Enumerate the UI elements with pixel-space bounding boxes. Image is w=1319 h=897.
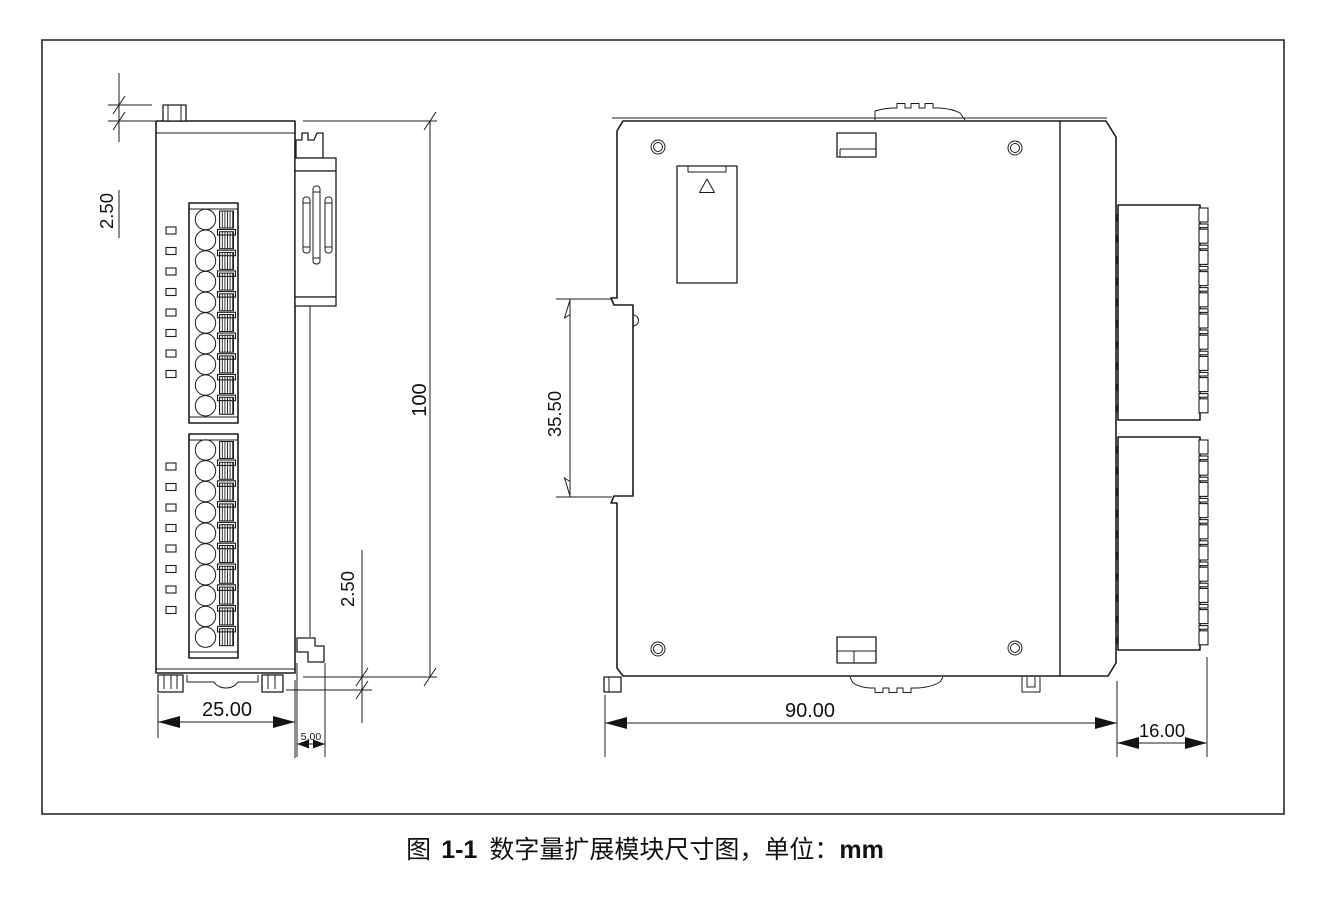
wire-clamp-hatch [220,462,234,479]
terminal-segment-bump [1199,399,1208,413]
dimension-value: 25.00 [202,699,252,721]
extension-lines [108,105,155,121]
led-indicator [166,227,176,234]
bottom-right-hook [1022,677,1040,692]
terminal-segment-bump [1199,482,1208,496]
terminal-segment-gap [1199,372,1208,376]
terminal-segment-bump [1199,440,1208,454]
led-indicator [166,289,176,296]
terminal-block-profile [1118,205,1200,420]
terminal-segment-gap [1199,245,1208,249]
terminal-segment-gap [1199,541,1208,545]
figure-caption: 图1-1数字量扩展模块尺寸图，单位：mm [406,836,884,864]
terminal-segment-bump [1199,293,1208,307]
wire-clamp-hatch [220,294,234,311]
dimension-value: 90.00 [785,700,835,722]
label-recess-frame [677,166,737,283]
terminal-segment-gap [1199,224,1208,228]
terminal-block-top [189,203,238,423]
dimension-din-rail-recess: 35.50 [544,299,612,497]
terminal-segment-gap [1199,330,1208,334]
terminal-segment-gap [1199,520,1208,524]
wire-clamp-hatch [220,252,234,269]
bottom-slot [837,637,876,663]
led-indicator [166,248,176,255]
led-indicator [166,268,176,275]
terminal-segment-bump [1199,504,1208,518]
wire-clamp-hatch [220,397,234,414]
terminal-segment-bump [1199,567,1208,581]
din-foot-tray [187,675,258,688]
connector-hook [296,133,323,158]
terminal-segment-gap [1199,456,1208,460]
terminal-segment-gap [1199,351,1208,355]
caption-figure-number: 1-1 [441,836,477,864]
wire-clamp-hatch [220,566,234,583]
terminal-segment-bump [1199,378,1208,392]
terminal-segment-bump [1199,208,1208,222]
wire-clamp-hatch [220,335,234,352]
terminal-segment-bump [1199,610,1208,624]
dimension-value: 35.50 [544,391,565,437]
dimension-bottom-clip-protrusion: 2.50 [286,550,372,723]
terminal-block-side-bottom [1117,437,1209,650]
slot-frame [837,133,876,157]
dimension-value: 100 [409,383,431,416]
connector-top-band [295,158,336,171]
terminal-segment-gap [1199,477,1208,481]
led-indicator [166,309,176,316]
top-slot [837,133,876,157]
terminal-segment-gap [1199,498,1208,502]
wire-clamp-hatch [220,315,234,332]
terminal-block-side-top [1117,205,1209,420]
terminal-segment-bump [1199,461,1208,475]
led-indicator [166,350,176,357]
terminal-segment-bump [1199,546,1208,560]
terminal-segment-gap [1199,562,1208,566]
terminal-segment-gap [1199,626,1208,630]
led-indicator [166,566,176,573]
terminal-segment-gap [1199,604,1208,608]
dimension-terminal-block-depth: 16.00 [1117,657,1207,757]
wire-clamp-hatch [220,525,234,542]
slot-frame [837,637,876,663]
wire-clamp-hatch [220,504,234,521]
din-clamp-tab [163,105,186,121]
bottom-hook [297,638,324,662]
terminal-segment-bump [1199,229,1208,243]
led-indicator [166,330,176,337]
wire-clamp-hatch [220,442,234,459]
terminal-segment-bump [1199,631,1208,645]
terminal-segment-gap [1199,266,1208,270]
dimension-value: 2.50 [96,193,117,229]
terminal-segment-bump [1199,314,1208,328]
wire-clamp-hatch [220,356,234,373]
wire-clamp-hatch [220,587,234,604]
dimension-value: 2.50 [337,571,358,607]
terminal-segment-bump [1199,525,1208,539]
din-foot-right [262,675,283,692]
dimension-value: 5.00 [301,731,322,743]
led-indicator [166,586,176,593]
wire-clamp-hatch [220,629,234,646]
wire-clamp-hatch [220,232,234,249]
expansion-bus-connector [295,133,336,662]
led-indicator [166,504,176,511]
arrowheads [565,300,571,496]
led-indicator [166,484,176,491]
wire-clamp-hatch [220,608,234,625]
din-foot-assembly [158,675,283,692]
caption-figure-label: 图 [406,836,431,864]
terminal-segment-bump [1199,588,1208,602]
caption-unit: mm [839,836,883,864]
wire-clamp-hatch [220,273,234,290]
led-indicator [166,371,176,378]
terminal-segment-bump [1199,356,1208,370]
bottom-left-foot [604,677,621,692]
terminal-segment-bump [1199,335,1208,349]
dimension-drawing: 2.50 100 2.50 25.00 5.00 [0,0,1319,897]
wire-clamp-hatch [220,211,234,228]
led-indicator [166,525,176,532]
wire-clamp-hatch [220,546,234,563]
front-view [156,105,336,692]
terminal-segment-gap [1199,394,1208,398]
connector-bottom-band [295,297,336,306]
terminal-segment-gap [1199,288,1208,292]
din-spring-clip-bottom [850,677,943,693]
terminal-block-bottom [189,434,238,658]
terminal-segment-bump [1199,250,1208,264]
terminal-segment-bump [1199,272,1208,286]
led-indicator [166,463,176,470]
terminal-segment-gap [1199,583,1208,587]
wire-clamp-hatch [220,377,234,394]
dimension-value: 16.00 [1139,720,1185,741]
led-indicator [166,545,176,552]
side-view [604,104,1208,693]
dimension-top-clip-protrusion: 2.50 [96,73,155,238]
technical-drawing-page: 2.50 100 2.50 25.00 5.00 [0,0,1319,897]
wire-clamp-hatch [220,483,234,500]
caption-title: 数字量扩展模块尺寸图，单位： [489,836,839,864]
label-recess [677,166,737,283]
terminal-segment-gap [1199,309,1208,313]
connector-housing [295,171,336,297]
terminal-block-profile [1118,437,1200,650]
led-indicator [166,607,176,614]
